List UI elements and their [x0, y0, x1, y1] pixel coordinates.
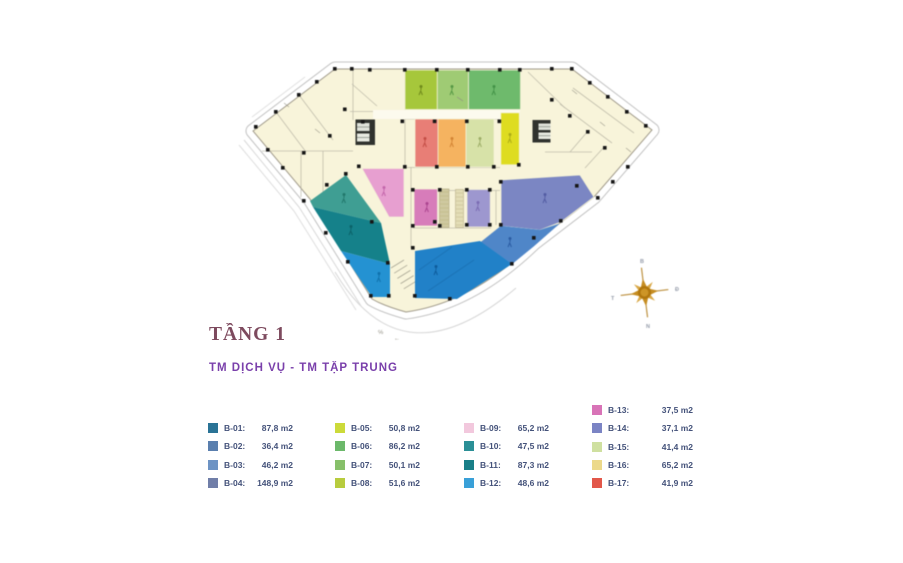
svg-text:N: N	[646, 324, 650, 330]
svg-text:Đ: Đ	[675, 287, 679, 293]
svg-text:B: B	[640, 259, 644, 265]
svg-text:T: T	[611, 296, 615, 302]
svg-text:℅: ℅	[378, 329, 384, 336]
svg-text:←: ←	[394, 336, 400, 342]
